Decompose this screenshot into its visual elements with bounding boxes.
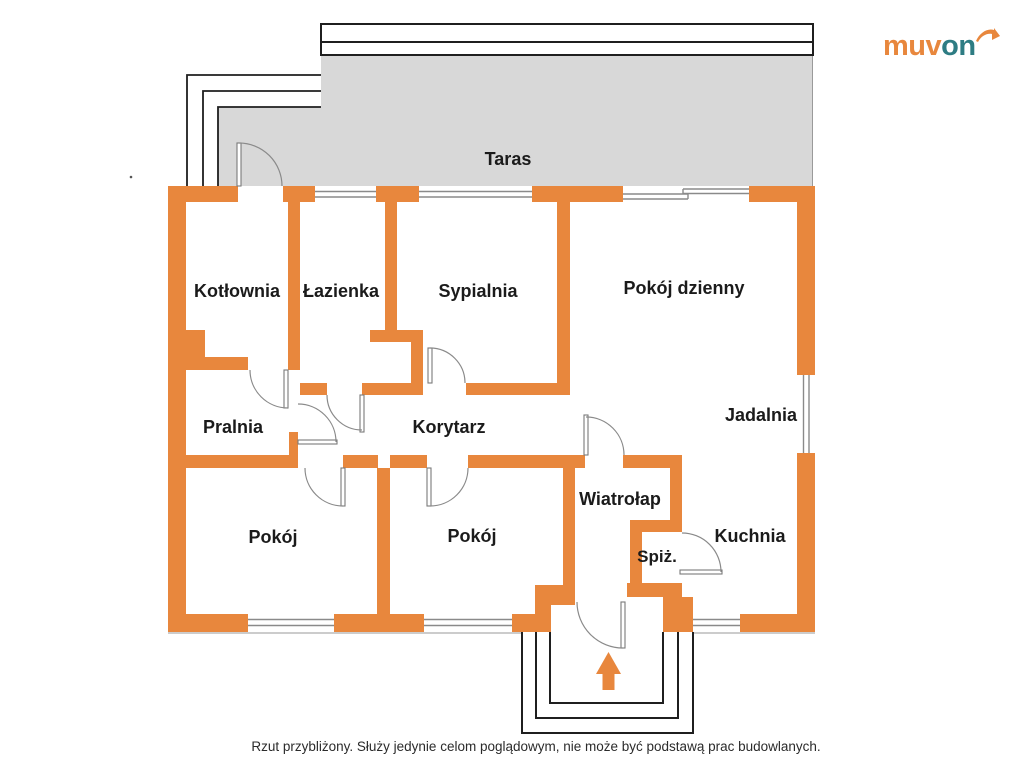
room-label-pokoj-1: Pokój xyxy=(248,527,297,547)
window-lazienka xyxy=(315,192,376,198)
room-label-wiatrolap: Wiatrołap xyxy=(579,489,661,509)
doors xyxy=(237,143,722,648)
window-kuchnia xyxy=(693,620,740,626)
door-wiatrolap xyxy=(584,415,624,455)
room-label-pokoj-2: Pokój xyxy=(447,526,496,546)
window-jadalnia xyxy=(804,375,810,453)
logo-text: muvon xyxy=(883,30,976,62)
room-label-lazienka: Łazienka xyxy=(303,281,380,301)
room-label-kotlownia: Kotłownia xyxy=(194,281,281,301)
room-label-sypialnia: Sypialnia xyxy=(438,281,518,301)
room-label-korytarz: Korytarz xyxy=(412,417,485,437)
entrance-arrow-icon xyxy=(596,652,621,690)
logo-text-muv: muv xyxy=(883,30,942,62)
room-label-spiz: Spiż. xyxy=(637,547,677,566)
door-entrance xyxy=(577,602,625,648)
room-label-taras: Taras xyxy=(485,149,532,169)
window-sypialnia xyxy=(419,192,532,198)
terrace-area xyxy=(130,24,813,186)
door-sypialnia xyxy=(428,348,465,383)
exterior-walls xyxy=(168,186,815,633)
brand-logo: muvon xyxy=(883,28,1000,62)
floor-plan-page: Taras Kotłownia Łazienka Sypialnia Pokój… xyxy=(0,0,1024,768)
room-label-pokoj-dzienny: Pokój dzienny xyxy=(623,278,744,298)
window-pokoj-2 xyxy=(424,620,512,626)
room-labels: Taras Kotłownia Łazienka Sypialnia Pokój… xyxy=(194,149,798,566)
disclaimer-text: Rzut przybliżony. Służy jedynie celom po… xyxy=(251,739,820,754)
terrace-steps-top xyxy=(321,24,813,55)
window-pokoj-1 xyxy=(248,620,334,626)
logo-arrow-icon xyxy=(976,28,1000,42)
window-pokoj-dzienny xyxy=(623,189,749,199)
room-label-jadalnia: Jadalnia xyxy=(725,405,798,425)
entry-porch xyxy=(522,632,693,733)
stray-dot xyxy=(130,176,133,179)
room-label-kuchnia: Kuchnia xyxy=(714,526,786,546)
floor-plan-canvas: Taras Kotłownia Łazienka Sypialnia Pokój… xyxy=(0,0,1024,768)
door-pokoj-2 xyxy=(427,468,468,506)
logo-text-on: on xyxy=(941,30,975,62)
door-korytarz-west xyxy=(298,404,337,444)
door-pokoj-1 xyxy=(305,468,345,506)
room-label-pralnia: Pralnia xyxy=(203,417,264,437)
door-pralnia-hall xyxy=(250,370,288,408)
